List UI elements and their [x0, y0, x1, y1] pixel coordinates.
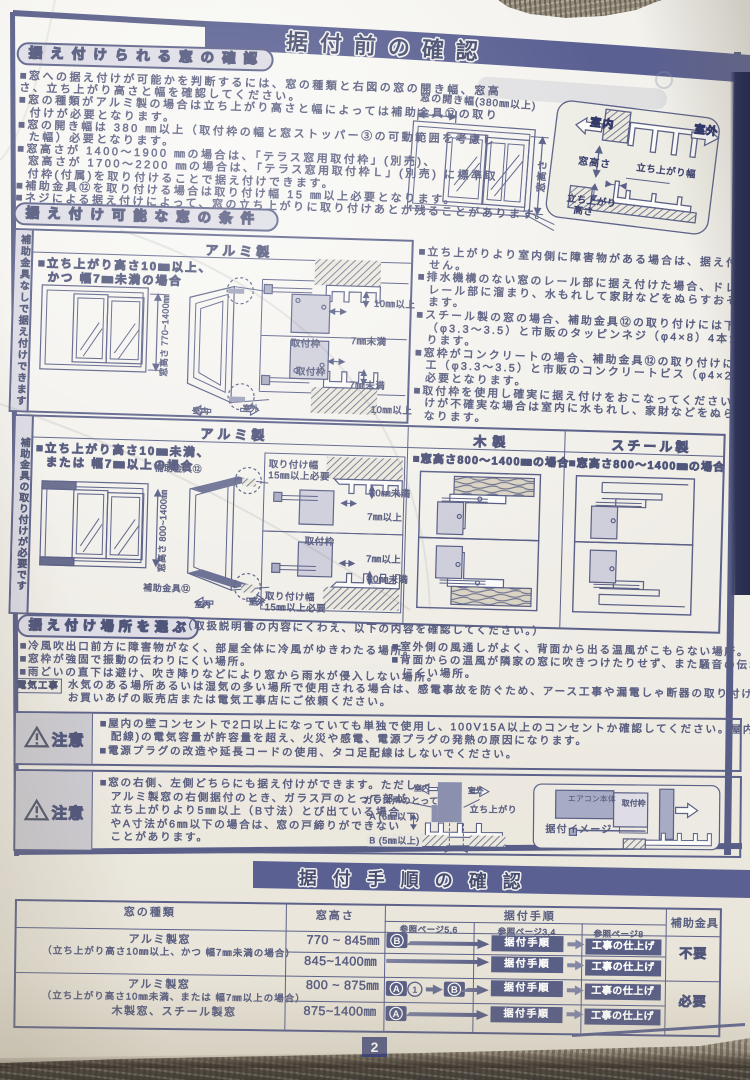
svg-text:1: 1 — [412, 985, 417, 995]
svg-text:B: B — [451, 985, 458, 996]
svg-text:A: A — [393, 984, 400, 995]
svg-text:A: A — [393, 1009, 400, 1020]
svg-text:B: B — [393, 936, 400, 947]
